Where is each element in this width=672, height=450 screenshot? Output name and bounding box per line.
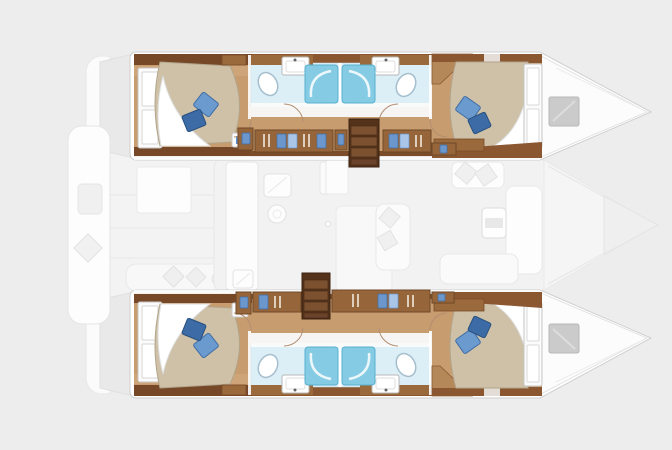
figure-mark-3a-stbd (415, 135, 417, 147)
fwd-headboard-panel-2-stbd (527, 109, 539, 145)
hanging-locker-icon-3-port (389, 294, 398, 308)
stair-tread-2-port (304, 291, 328, 300)
stair-tread-4-port (304, 313, 328, 318)
stair-tread-1-stbd (351, 126, 377, 135)
mast-foot (326, 222, 331, 227)
figure-mark-2a-stbd (303, 134, 305, 147)
stair-tread-3-port (304, 302, 328, 311)
hanging-locker-icon-4-stbd (389, 134, 398, 148)
figure-mark-3a-port (407, 295, 409, 307)
stair-tread-1-port (304, 280, 328, 289)
floor-plan-canvas (0, 0, 672, 450)
fwd-top-window-stbd (484, 54, 500, 62)
salon-box-top (326, 160, 348, 194)
galley-stove (268, 205, 286, 223)
sink-left-faucet-port (294, 389, 297, 392)
hanging-locker-icon-1-port (259, 295, 268, 309)
locker-small-2-icon-stbd (338, 134, 344, 145)
hanging-locker-icon-2-port (378, 294, 387, 308)
forward-beam (604, 196, 658, 254)
figure-mark-1a-stbd (263, 134, 265, 147)
fwd-bulkhead-stbd (429, 55, 432, 119)
bathroom-wall-strip-port (251, 333, 431, 347)
aft-overhead-locker-stbd (222, 55, 246, 65)
figure-mark-1b-port (279, 296, 281, 308)
shower-left-stbd (305, 65, 338, 103)
helm-console (68, 126, 110, 324)
figure-mark-2a-port (352, 294, 354, 307)
figure-mark-3b-stbd (420, 135, 422, 147)
fwd-headboard-panel-1-port (527, 345, 539, 382)
hanging-locker-icon-5-stbd (400, 134, 409, 148)
figure-mark-3b-port (412, 295, 414, 307)
shower-right-stbd (342, 65, 375, 103)
drawer-unit-icon-stbd (440, 145, 447, 153)
catamaran-floor-plan-diagram (0, 0, 672, 450)
figure-mark-1b-stbd (268, 134, 270, 147)
figure-mark-2b-stbd (308, 134, 310, 147)
helm-console-panel (78, 184, 102, 214)
sink-right-faucet-port (385, 389, 388, 392)
sink-right-faucet-stbd (385, 59, 388, 62)
aft-bulkhead-port (248, 331, 251, 395)
locker-small-1-icon-port (240, 297, 248, 308)
drawer-unit-icon-port (438, 294, 445, 301)
stair-tread-3-stbd (351, 148, 377, 157)
hanging-locker-icon-2-stbd (288, 134, 297, 148)
locker-small-1-icon-stbd (242, 133, 250, 144)
figure-mark-2b-port (357, 294, 359, 307)
stair-tread-2-stbd (351, 137, 377, 146)
salon-table-band (485, 218, 503, 228)
shower-right-port (342, 347, 375, 385)
figure-mark-1a-port (274, 296, 276, 308)
cockpit-table (137, 167, 191, 213)
hanging-locker-icon-3-stbd (317, 134, 326, 148)
hanging-locker-icon-1-stbd (277, 134, 286, 148)
sofa-bottom-bench (440, 254, 518, 284)
shower-left-port (305, 347, 338, 385)
fwd-top-window-port (484, 388, 500, 396)
aft-overhead-locker-port (222, 385, 246, 395)
fwd-headboard-panel-1-stbd (527, 68, 539, 105)
stair-tread-4-stbd (351, 159, 377, 165)
aft-bulkhead-stbd (248, 55, 251, 119)
fwd-headboard-panel-2-port (527, 305, 539, 341)
fwd-bulkhead-port (429, 331, 432, 395)
bathroom-wall-strip-stbd (251, 103, 431, 117)
sink-left-faucet-stbd (294, 59, 297, 62)
